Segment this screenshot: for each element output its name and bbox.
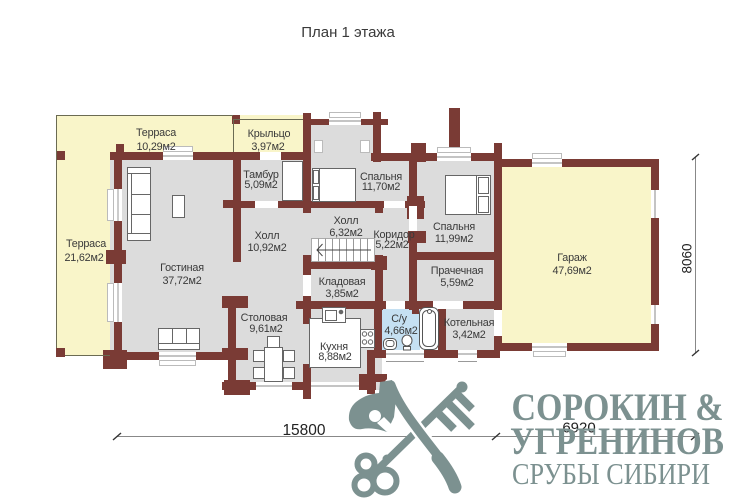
svg-text:6,32м2: 6,32м2 bbox=[329, 227, 362, 239]
svg-text:21,62м2: 21,62м2 bbox=[64, 252, 103, 264]
svg-text:9,61м2: 9,61м2 bbox=[249, 323, 282, 335]
svg-text:Прачечная: Прачечная bbox=[431, 265, 484, 277]
svg-text:15800: 15800 bbox=[282, 422, 325, 439]
svg-text:Кладовая: Кладовая bbox=[319, 276, 366, 288]
svg-text:3,42м2: 3,42м2 bbox=[452, 329, 485, 341]
svg-text:11,70м2: 11,70м2 bbox=[362, 181, 400, 193]
svg-text:С/у: С/у bbox=[391, 313, 407, 325]
svg-text:3,85м2: 3,85м2 bbox=[325, 288, 358, 300]
svg-text:37,72м2: 37,72м2 bbox=[162, 275, 201, 287]
svg-text:Гостиная: Гостиная bbox=[160, 262, 204, 274]
svg-text:Котельная: Котельная bbox=[444, 317, 495, 329]
svg-text:Терраса: Терраса bbox=[66, 238, 106, 250]
svg-text:Холл: Холл bbox=[255, 230, 280, 242]
svg-text:10,29м2: 10,29м2 bbox=[136, 141, 175, 153]
svg-text:8060: 8060 bbox=[680, 243, 695, 273]
svg-text:Крыльцо: Крыльцо bbox=[248, 128, 291, 140]
svg-text:3,97м2: 3,97м2 bbox=[251, 141, 284, 153]
svg-text:47,69м2: 47,69м2 bbox=[552, 265, 591, 277]
svg-text:План 1 этажа: План 1 этажа bbox=[301, 24, 395, 41]
svg-text:Терраса: Терраса bbox=[136, 127, 176, 139]
svg-text:Спальня: Спальня bbox=[433, 221, 475, 233]
svg-text:8,88м2: 8,88м2 bbox=[318, 351, 351, 363]
svg-text:5,09м2: 5,09м2 bbox=[244, 179, 277, 191]
svg-text:11,99м2: 11,99м2 bbox=[435, 233, 473, 245]
svg-text:СРУБЫ СИБИРИ: СРУБЫ СИБИРИ bbox=[512, 456, 710, 491]
svg-text:5,59м2: 5,59м2 bbox=[440, 277, 473, 289]
svg-text:10,92м2: 10,92м2 bbox=[247, 242, 286, 254]
svg-text:5,22м2: 5,22м2 bbox=[375, 239, 408, 251]
svg-text:Гараж: Гараж bbox=[557, 252, 587, 264]
svg-text:4,66м2: 4,66м2 bbox=[384, 325, 417, 337]
svg-text:Холл: Холл bbox=[334, 215, 359, 227]
